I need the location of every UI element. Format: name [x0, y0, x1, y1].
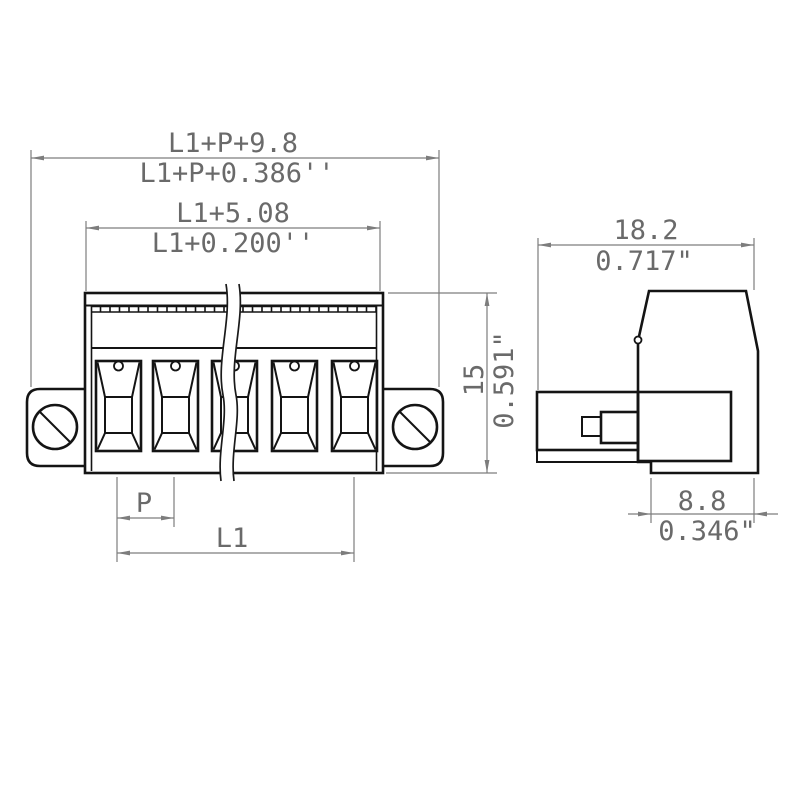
technical-drawing: L1+P+9.8 L1+P+0.386'' L1+5.08 L1+0.200''… [0, 0, 800, 800]
plug-shroud [537, 392, 638, 450]
latch-notch [635, 337, 642, 344]
dim-housing-width-in: L1+0.200'' [152, 228, 315, 259]
terminal-cell [96, 361, 141, 451]
pin-step-2 [582, 417, 601, 436]
screw-slot-right [400, 412, 431, 443]
side-inner-block [638, 392, 731, 461]
dim-housing-width-mm: L1+5.08 [176, 198, 290, 229]
dim-housing-width: L1+5.08 L1+0.200'' [86, 198, 380, 291]
terminal-cell [272, 361, 317, 451]
pin-step-1 [601, 412, 638, 443]
screw-slot-left [40, 412, 71, 443]
dim-pitch: P [117, 477, 174, 562]
mounting-flange-left [27, 389, 85, 466]
front-view [27, 284, 443, 481]
side-view [537, 291, 758, 473]
dim-foot-depth: 8.8 0.346" [628, 478, 778, 547]
dim-total-width-in: L1+P+0.386'' [139, 158, 334, 189]
dim-pitch-label: P [136, 488, 152, 519]
mounting-flange-right [383, 389, 443, 466]
dim-length-label: L1 [216, 523, 249, 554]
drawing-canvas: L1+P+9.8 L1+P+0.386'' L1+5.08 L1+0.200''… [0, 0, 800, 800]
dim-foot-depth-in: 0.346" [658, 516, 756, 547]
dim-side-depth-mm: 18.2 [613, 215, 678, 246]
terminal-cell [332, 361, 377, 451]
side-body [638, 291, 758, 473]
dim-side-depth-in: 0.717" [595, 246, 693, 277]
dim-total-width-mm: L1+P+9.8 [168, 128, 298, 159]
dim-foot-depth-mm: 8.8 [678, 486, 727, 517]
dim-height-in: 0.591" [489, 331, 520, 429]
terminal-cell [153, 361, 198, 451]
dim-length-l1: L1 [117, 477, 354, 562]
dim-height-mm: 15 [459, 364, 490, 397]
plug-strip [537, 450, 638, 462]
